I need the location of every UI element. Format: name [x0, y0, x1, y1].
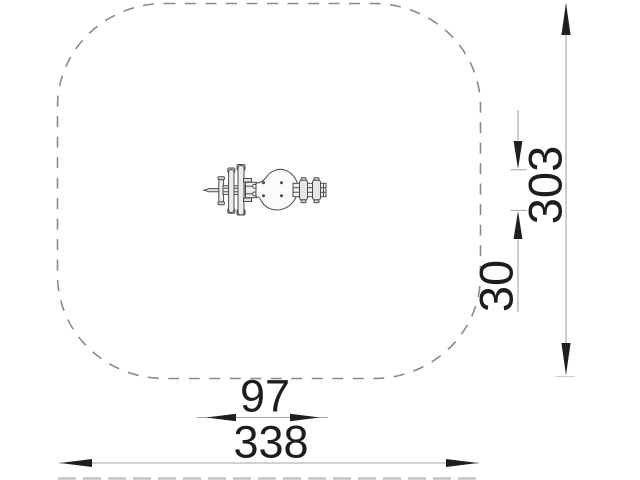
hub-tab-top	[244, 179, 252, 183]
dimension-label-total-height: 303	[522, 146, 569, 224]
seat-body	[256, 169, 298, 210]
seat-bolt-hole	[262, 194, 265, 197]
hub-tab-bottom	[244, 198, 252, 202]
spring-clamp	[313, 180, 321, 199]
spring-beam	[293, 183, 326, 196]
technical-drawing-page: 97 338 303 30	[0, 0, 640, 480]
arrow-up-icon	[561, 3, 570, 35]
dimension-label-total-width: 338	[233, 420, 308, 465]
arrow-left-icon	[206, 414, 236, 421]
dimension-label-equipment-width: 30	[473, 260, 520, 312]
spring-rider-top-view	[204, 165, 326, 216]
technical-drawing	[0, 0, 640, 480]
spring-clamp	[300, 180, 308, 199]
dimension-label-equipment-length: 97	[240, 374, 290, 419]
seat-bolt-hole	[262, 181, 265, 184]
seat-bolt-hole	[280, 181, 283, 184]
arrow-left-icon	[60, 459, 92, 467]
seat-bolt-hole	[280, 194, 283, 197]
footrest-bar	[229, 170, 234, 213]
arrow-down-icon	[561, 343, 570, 375]
handlebar-bar	[238, 166, 244, 216]
arrow-right-icon	[446, 459, 478, 467]
